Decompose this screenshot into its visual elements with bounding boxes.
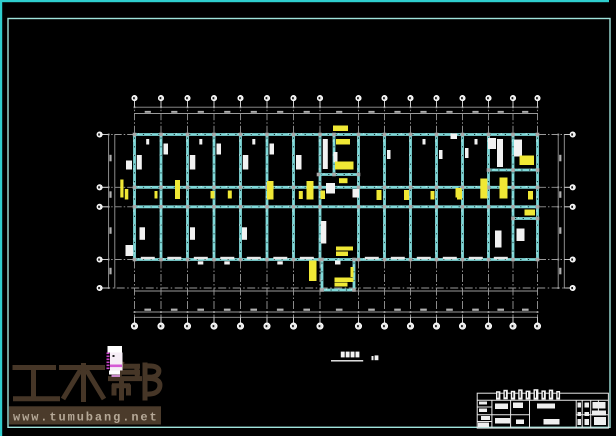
svg-text:www.tumubang.net: www.tumubang.net bbox=[13, 411, 159, 425]
